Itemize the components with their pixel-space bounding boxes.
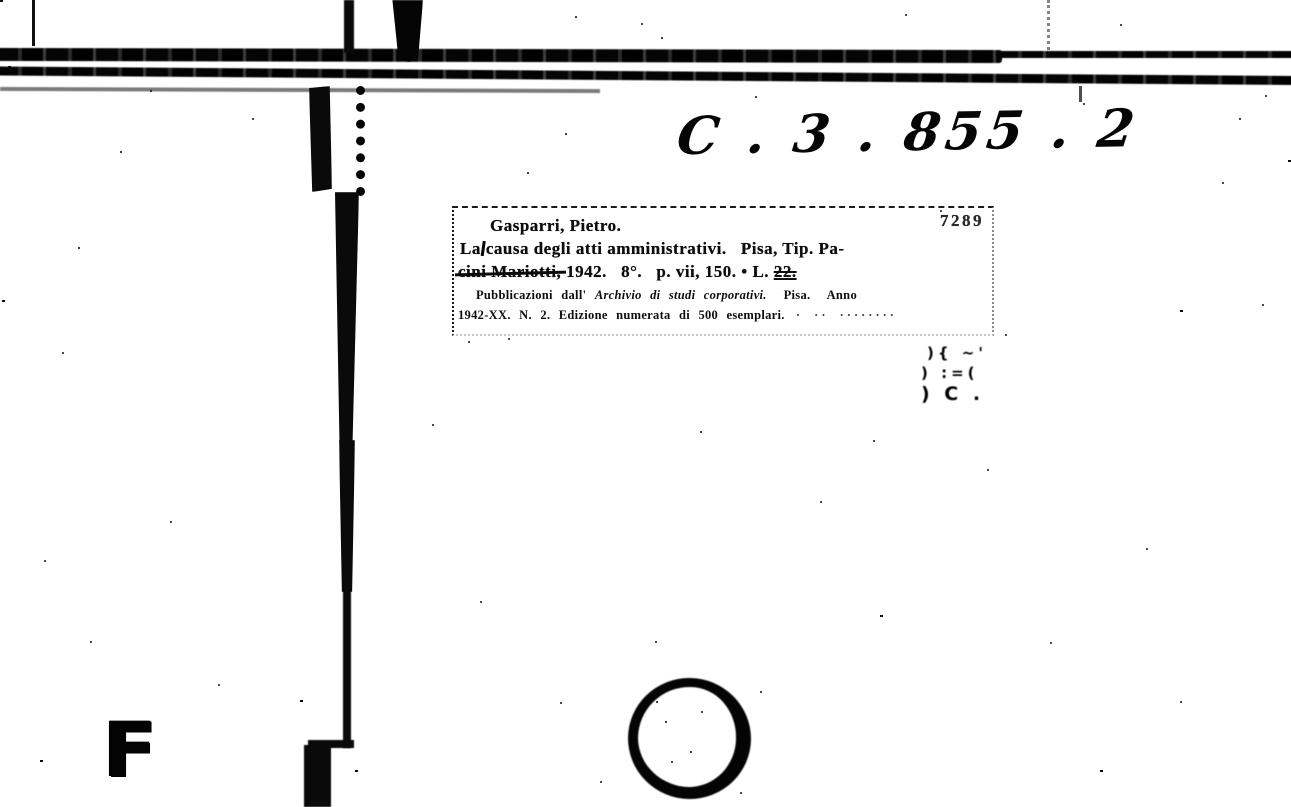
horizontal-scan-line-top (0, 48, 1002, 63)
series-note-line1: Pubblicazioni dall' Archivio di studi co… (476, 288, 857, 303)
card-edge-band-upper-right (356, 86, 378, 196)
edition-note: 1942-XX. N. 2. Edizione numerata di 500 … (458, 308, 785, 322)
author-heading: Gasparri, Pietro. (490, 216, 621, 236)
card-edge-band-bottom (304, 745, 331, 807)
series-title: Archivio di studi corporativi. (595, 288, 767, 302)
horizontal-scan-line-top-right (996, 51, 1291, 58)
illegible-stamp-row-2: ) :=( (921, 364, 979, 382)
photocopy-speckles-secondary (0, 0, 3, 2)
catalog-entry-box: Gasparri, Pietro. 7289 Lacausa degli att… (452, 206, 994, 336)
punch-hole-ring (622, 672, 757, 805)
title-line: Lacausa degli atti amministrativi. Pisa,… (460, 239, 845, 259)
series-note-suffix: Pisa. Anno (767, 288, 857, 302)
series-note-line2: 1942-XX. N. 2. Edizione numerata di 500 … (458, 308, 897, 323)
dotted-vertical-artifact (1047, 0, 1050, 50)
trailing-dots-artifact: · ·· ········ (785, 308, 897, 322)
vertical-edge-stub (344, 0, 354, 53)
horizontal-scan-line-shadow (0, 87, 600, 93)
title-line-start: La (460, 239, 481, 258)
handwritten-call-number: C . 3 . 855 . 2 (674, 100, 1042, 167)
pen-mark (481, 241, 486, 256)
card-edge-band-middle (339, 440, 355, 592)
scanned-catalog-card-page: C . 3 . 855 . 2 Gasparri, Pietro. 7289 L… (0, 0, 1291, 807)
price-struck-text: 22. (774, 262, 797, 281)
publisher-struck-text: cini Mariotti, (458, 262, 561, 281)
card-edge-band-main (334, 192, 359, 444)
horizontal-scan-line-second (0, 66, 1291, 85)
card-control-number: 7289 (940, 211, 984, 231)
title-line-rest: causa degli atti amministrativi. Pisa, T… (486, 239, 845, 258)
corner-letter-f: F (103, 712, 158, 788)
illegible-stamp-row-1: ){ ~' (927, 344, 987, 362)
series-note-prefix: Pubblicazioni dall' (476, 288, 595, 302)
imprint-line: cini Mariotti, 1942. 8°. p. vii, 150. • … (458, 262, 797, 282)
imprint-details: 1942. 8°. p. vii, 150. • L. (561, 262, 774, 281)
illegible-stamp-row-3: ) C . (921, 383, 984, 405)
card-edge-band-upper-left (309, 86, 332, 192)
left-edge-line-artifact (32, 0, 35, 46)
card-edge-line-thin (343, 588, 351, 748)
